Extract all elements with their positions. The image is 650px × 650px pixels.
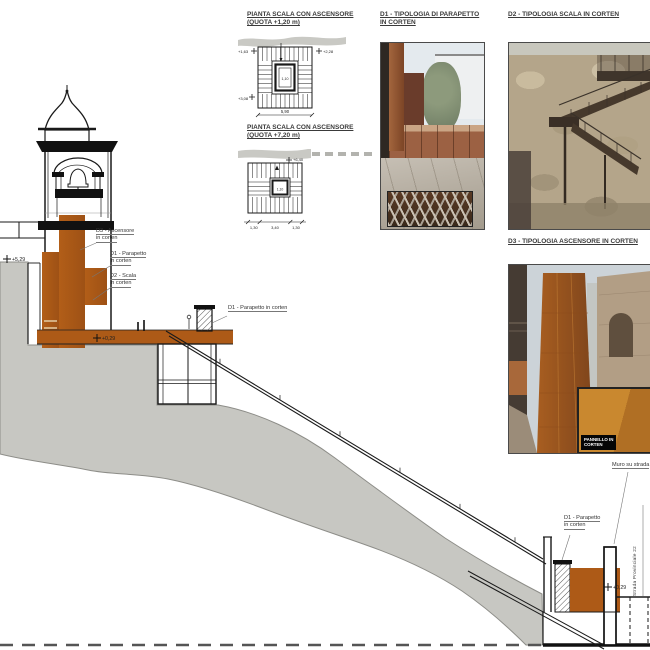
- tower-cornice-upper: [36, 141, 118, 152]
- plan1-level-tl: +1,63: [238, 49, 249, 54]
- plan1-title-line2: (QUOTA +1,20 m): [247, 19, 353, 27]
- callout-parapetto-mid-text: D1 - Parapetto in corten: [228, 305, 287, 312]
- d3-arched-window: [609, 313, 633, 357]
- callout-parapetto-mid: D1 - Parapetto in corten: [228, 305, 287, 312]
- plan2-dim-left: 1,30: [250, 225, 259, 230]
- corten-parapet-post: [187, 305, 215, 331]
- plan2-dim-mid: 3,40: [271, 225, 280, 230]
- d1-title: D1 - TIPOLOGIA DI PARAPETTO IN CORTEN: [380, 11, 479, 27]
- callout-muro: Muro su strada: [612, 462, 650, 469]
- d3-title-line1: D3 - TIPOLOGIA ASCENSORE IN CORTEN: [508, 238, 638, 246]
- d2-title-line1: D2 - TIPOLOGIA SCALA IN CORTEN: [508, 11, 619, 19]
- callout-muro-text: Muro su strada: [612, 462, 649, 469]
- plan2-title-line2: (QUOTA +7,20 m): [247, 132, 353, 140]
- plan-quota-1-20: 1,10 +1,63 +2,28 +3,08 5,90: [238, 34, 348, 129]
- d3-title: D3 - TIPOLOGIA ASCENSORE IN CORTEN: [508, 238, 638, 246]
- photo-d1-parapetto: [380, 42, 485, 230]
- architectural-drawing-sheet: +5,29 +0,29 +0,29 PIANTA SCALA CON ASCEN…: [0, 0, 650, 650]
- callout-scala-line2: in corten: [110, 280, 131, 287]
- d1-tree: [422, 62, 461, 133]
- callout-parapetto: D1 - Parapetto in corten: [110, 251, 146, 266]
- callout-ascensore-line2: in corten: [96, 235, 117, 242]
- d1-title-line2: IN CORTEN: [380, 19, 479, 27]
- d3-inset-label: PANNELLO IN CORTEN: [581, 435, 616, 450]
- landing-structure: [158, 344, 216, 404]
- d1-mesh-inset-photo: [387, 191, 473, 227]
- street-parapet-post: [555, 564, 570, 612]
- d2-title: D2 - TIPOLOGIA SCALA IN CORTEN: [508, 11, 619, 19]
- photo-d2-scala: [508, 42, 650, 230]
- plan1-total-dim: 5,90: [281, 109, 290, 114]
- plan2-title: PIANTA SCALA CON ASCENSORE (QUOTA +7,20 …: [247, 124, 353, 140]
- plan-quota-7-20: 1,10 +6,40 1,30 3,40 1,30: [238, 146, 378, 236]
- level-deck-value: +0,29: [102, 336, 115, 342]
- plan2-title-line1: PIANTA SCALA CON ASCENSORE: [247, 124, 353, 132]
- photo-d3-ascensore: PANNELLO IN CORTEN: [508, 264, 650, 454]
- plan2-dim-right: 1,30: [292, 225, 301, 230]
- plan1-title-line1: PIANTA SCALA CON ASCENSORE: [247, 11, 353, 19]
- d3-inset-label-line2: CORTEN: [584, 442, 613, 448]
- callout-parapetto-line2: in corten: [110, 258, 131, 265]
- plan1-level-tr: +2,28: [323, 49, 334, 54]
- callout-strada-provinciale: Strada Provinciale 22: [632, 500, 637, 596]
- corten-mesh-pattern: [388, 192, 472, 226]
- plan2-level-tr: +6,40: [293, 157, 304, 162]
- plan2-shaft-dim: 1,10: [277, 188, 284, 192]
- bell-icon: [68, 169, 88, 187]
- plan1-level-bl: +3,08: [238, 96, 249, 101]
- d1-corten-pillar: [389, 43, 403, 151]
- callout-parapetto-low-line2: in corten: [564, 522, 585, 529]
- plan1-terrain-cut: [238, 37, 346, 47]
- callout-ascensore: D3 - Ascensore in corten: [96, 228, 134, 243]
- d2-stair-overlay: [509, 43, 650, 229]
- callout-parapetto-low: D1 - Parapetto in corten: [564, 515, 600, 530]
- level-upper-value: +5,29: [12, 257, 25, 263]
- street-right-post: [604, 547, 616, 645]
- tower-dome: [45, 90, 89, 130]
- plan1-shaft-dim: 1,10: [282, 77, 289, 81]
- street-parapet-cap: [553, 560, 572, 564]
- callout-parapetto-low-line1: D1 - Parapetto: [564, 515, 600, 522]
- d2-top-mesh-railing: [597, 55, 650, 72]
- callout-scala: D2 - Scala in corten: [110, 273, 136, 288]
- callout-scala-line1: D2 - Scala: [110, 273, 136, 280]
- callout-parapetto-line1: D1 - Parapetto: [110, 251, 146, 258]
- plan1-title: PIANTA SCALA CON ASCENSORE (QUOTA +1,20 …: [247, 11, 353, 27]
- d1-title-line1: D1 - TIPOLOGIA DI PARAPETTO: [380, 11, 479, 19]
- callout-strada-text: Strada Provinciale 22: [632, 546, 637, 596]
- level-street-value: +0,29: [613, 585, 626, 591]
- d3-corten-inset-photo: PANNELLO IN CORTEN: [577, 387, 650, 454]
- callout-ascensore-line1: D3 - Ascensore: [96, 228, 134, 235]
